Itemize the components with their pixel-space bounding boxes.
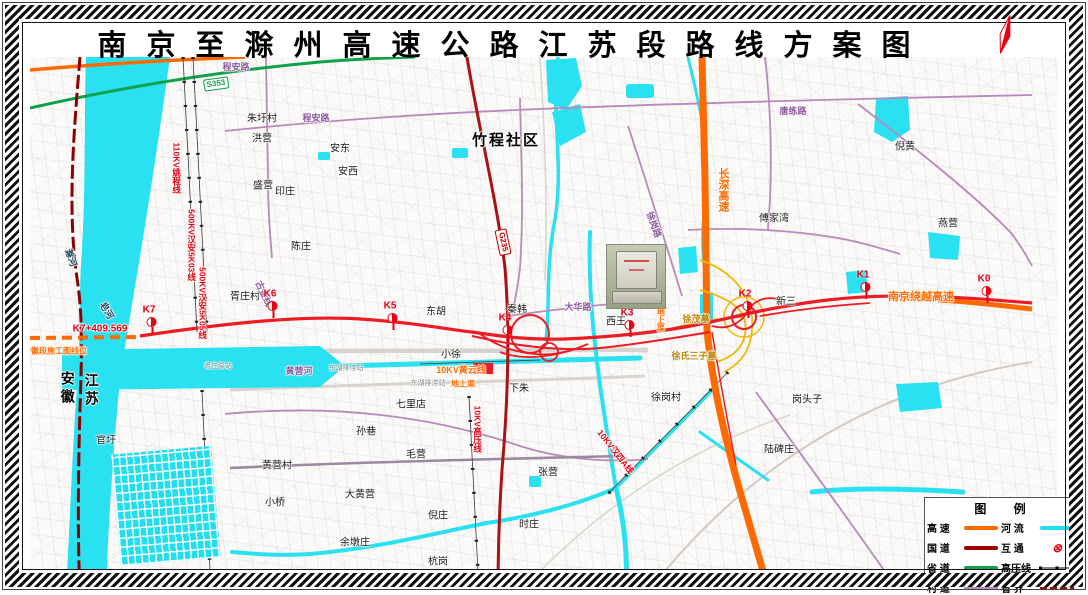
map-label: 印庄: [275, 187, 295, 198]
legend-swatch-interchange: ⊗: [1039, 543, 1075, 553]
legend-item-label: 河 流: [1001, 520, 1039, 535]
monument-photo-inset: [606, 244, 666, 309]
station-label-k0: K0: [978, 274, 991, 285]
map-label: 程安路: [302, 114, 329, 124]
station-marker-k4: [503, 325, 514, 342]
map-label: 徐氏三子墓: [671, 352, 716, 362]
map-label: 新三: [776, 297, 796, 308]
station-marker-k7: [147, 317, 158, 334]
map-label: 时庄: [519, 520, 539, 531]
legend-item-label: 省 界: [1001, 580, 1039, 595]
map-label: 黄营村: [262, 461, 292, 472]
map-label: 安东: [330, 144, 350, 155]
station-pin-icon: [743, 301, 753, 311]
legend-swatch-dashed: [1039, 586, 1075, 590]
map-label: 竹程社区: [472, 133, 540, 150]
map-label: 小徐: [441, 350, 461, 361]
station-marker-k2: [743, 301, 754, 318]
map-label: 东湖排涝站: [329, 365, 364, 373]
map-label: 盛营: [253, 181, 273, 192]
station-pin-icon: [147, 317, 157, 327]
map-label: 110KV姚程线: [171, 142, 180, 193]
fish-pond-grid: [111, 446, 220, 566]
map-label: 南京绕越高速: [888, 291, 954, 303]
map-label: 10KV黄云线: [436, 366, 486, 376]
map-label: 倪庄: [428, 511, 448, 522]
station-marker-k6: [268, 301, 279, 318]
legend-swatch-powerline: [1039, 564, 1075, 572]
map-label: 七里店: [396, 400, 426, 411]
map-label: 江苏: [83, 373, 98, 409]
station-pin-icon: [861, 282, 871, 292]
map-label: 500KV汉安5K05线: [197, 267, 206, 339]
station-pin-stem: [987, 296, 989, 303]
legend-swatch-line: [960, 566, 1001, 570]
route-map-canvas: 朱圩村洪营安东安西盛营印庄陈庄胥庄村竹程社区东胡小徐秦韩西王新三傅家湾燕营倪黄下…: [30, 57, 1058, 569]
map-label: 朱圩村: [247, 114, 277, 125]
page-title: 南京至滁州高速公路江苏段路线方案图: [0, 22, 1028, 64]
map-label: 徐岗村: [651, 393, 681, 404]
map-label: 程安路: [222, 63, 249, 73]
map-legend: 图 例 高 速河 流国 道互 通⊗省 道高压线村 道省 界: [924, 497, 1076, 576]
legend-item-label: 互 通: [1001, 540, 1039, 555]
station-label-k5: K5: [384, 301, 397, 312]
stone-base: [612, 291, 663, 304]
map-label: 燕营: [938, 219, 958, 230]
station-label-k6: K6: [264, 289, 277, 300]
map-label: 余墩庄: [340, 538, 370, 549]
station-pin-stem: [393, 323, 395, 330]
station-pin-stem: [866, 292, 868, 299]
map-label: 500KV汉安5K03线: [186, 209, 195, 281]
map-label: 下朱: [509, 384, 529, 395]
station-marker-k3: [625, 320, 636, 337]
map-label: 长深高速: [717, 168, 729, 212]
compass-north-arrow: [992, 13, 1018, 62]
station-marker-k0: [982, 286, 993, 303]
map-label: 胥庄村: [230, 292, 260, 303]
legend-swatch-line: [960, 546, 1001, 550]
map-label: 安徽: [59, 371, 74, 407]
station-pin-icon: [268, 301, 278, 311]
station-marker-k5: [388, 313, 399, 330]
map-label: 小桥: [265, 498, 285, 509]
station-pin-stem: [508, 335, 510, 342]
legend-swatch-line: [960, 586, 1001, 590]
map-label: 黄营河: [285, 367, 312, 377]
map-label: 官圩: [96, 436, 116, 447]
legend-item-label: 村 道: [927, 580, 960, 595]
map-label: 大黄营: [345, 490, 375, 501]
station-pin-stem: [630, 330, 632, 337]
map-label: 安西: [338, 167, 358, 178]
map-label: 地上渠: [656, 308, 665, 332]
map-label: 胥庄泵站: [204, 363, 232, 371]
station-label-k7: K7: [143, 305, 156, 316]
map-label: 岗头子: [792, 395, 822, 406]
station-pin-icon: [625, 320, 635, 330]
legend-title: 图 例: [925, 500, 1075, 517]
station-pin-icon: [982, 286, 992, 296]
map-label: 陆碑庄: [764, 445, 794, 456]
map-label: K7+409.569: [73, 324, 128, 335]
map-label: 东胡: [426, 307, 446, 318]
map-label: 陈庄: [291, 242, 311, 253]
map-label: 倪黄: [895, 142, 915, 153]
map-label: 孙巷: [356, 427, 376, 438]
map-label: 徐茂墓: [682, 315, 709, 325]
station-label-k4: K4: [499, 313, 512, 324]
map-label: 张营: [538, 468, 558, 479]
map-label: 地上渠: [451, 381, 475, 390]
map-label: 大华路: [564, 303, 591, 313]
map-label: 毛营: [406, 450, 426, 461]
map-label: 唐练路: [779, 107, 806, 117]
route-plan-sheet: { "title": "南京至滁州高速公路江苏段路线方案图", "legend"…: [0, 0, 1088, 592]
map-label: 安徽段施工图线位: [30, 348, 87, 357]
station-pin-icon: [503, 325, 513, 335]
map-label: 10KV高压线: [472, 406, 481, 453]
legend-swatch-line: [960, 526, 1001, 530]
station-label-k3: K3: [621, 308, 634, 319]
station-label-k2: K2: [739, 289, 752, 300]
station-pin-stem: [273, 311, 275, 318]
map-label: 东湖排涝站: [411, 380, 446, 388]
legend-item-label: 高压线: [1001, 560, 1039, 575]
legend-item-label: 国 道: [927, 540, 960, 555]
stone-stele: [616, 251, 656, 288]
station-pin-icon: [388, 313, 398, 323]
map-label: 洪营: [252, 134, 272, 145]
map-label: 杭岗: [428, 557, 448, 568]
legend-swatch-line: [1039, 526, 1075, 530]
station-marker-k1: [861, 282, 872, 299]
station-pin-stem: [152, 327, 154, 334]
map-label: 傅家湾: [759, 214, 789, 225]
river-channels: [232, 57, 963, 569]
station-pin-stem: [748, 311, 750, 318]
legend-item-label: 省 道: [927, 560, 960, 575]
legend-item-label: 高 速: [927, 520, 960, 535]
station-label-k1: K1: [857, 270, 870, 281]
